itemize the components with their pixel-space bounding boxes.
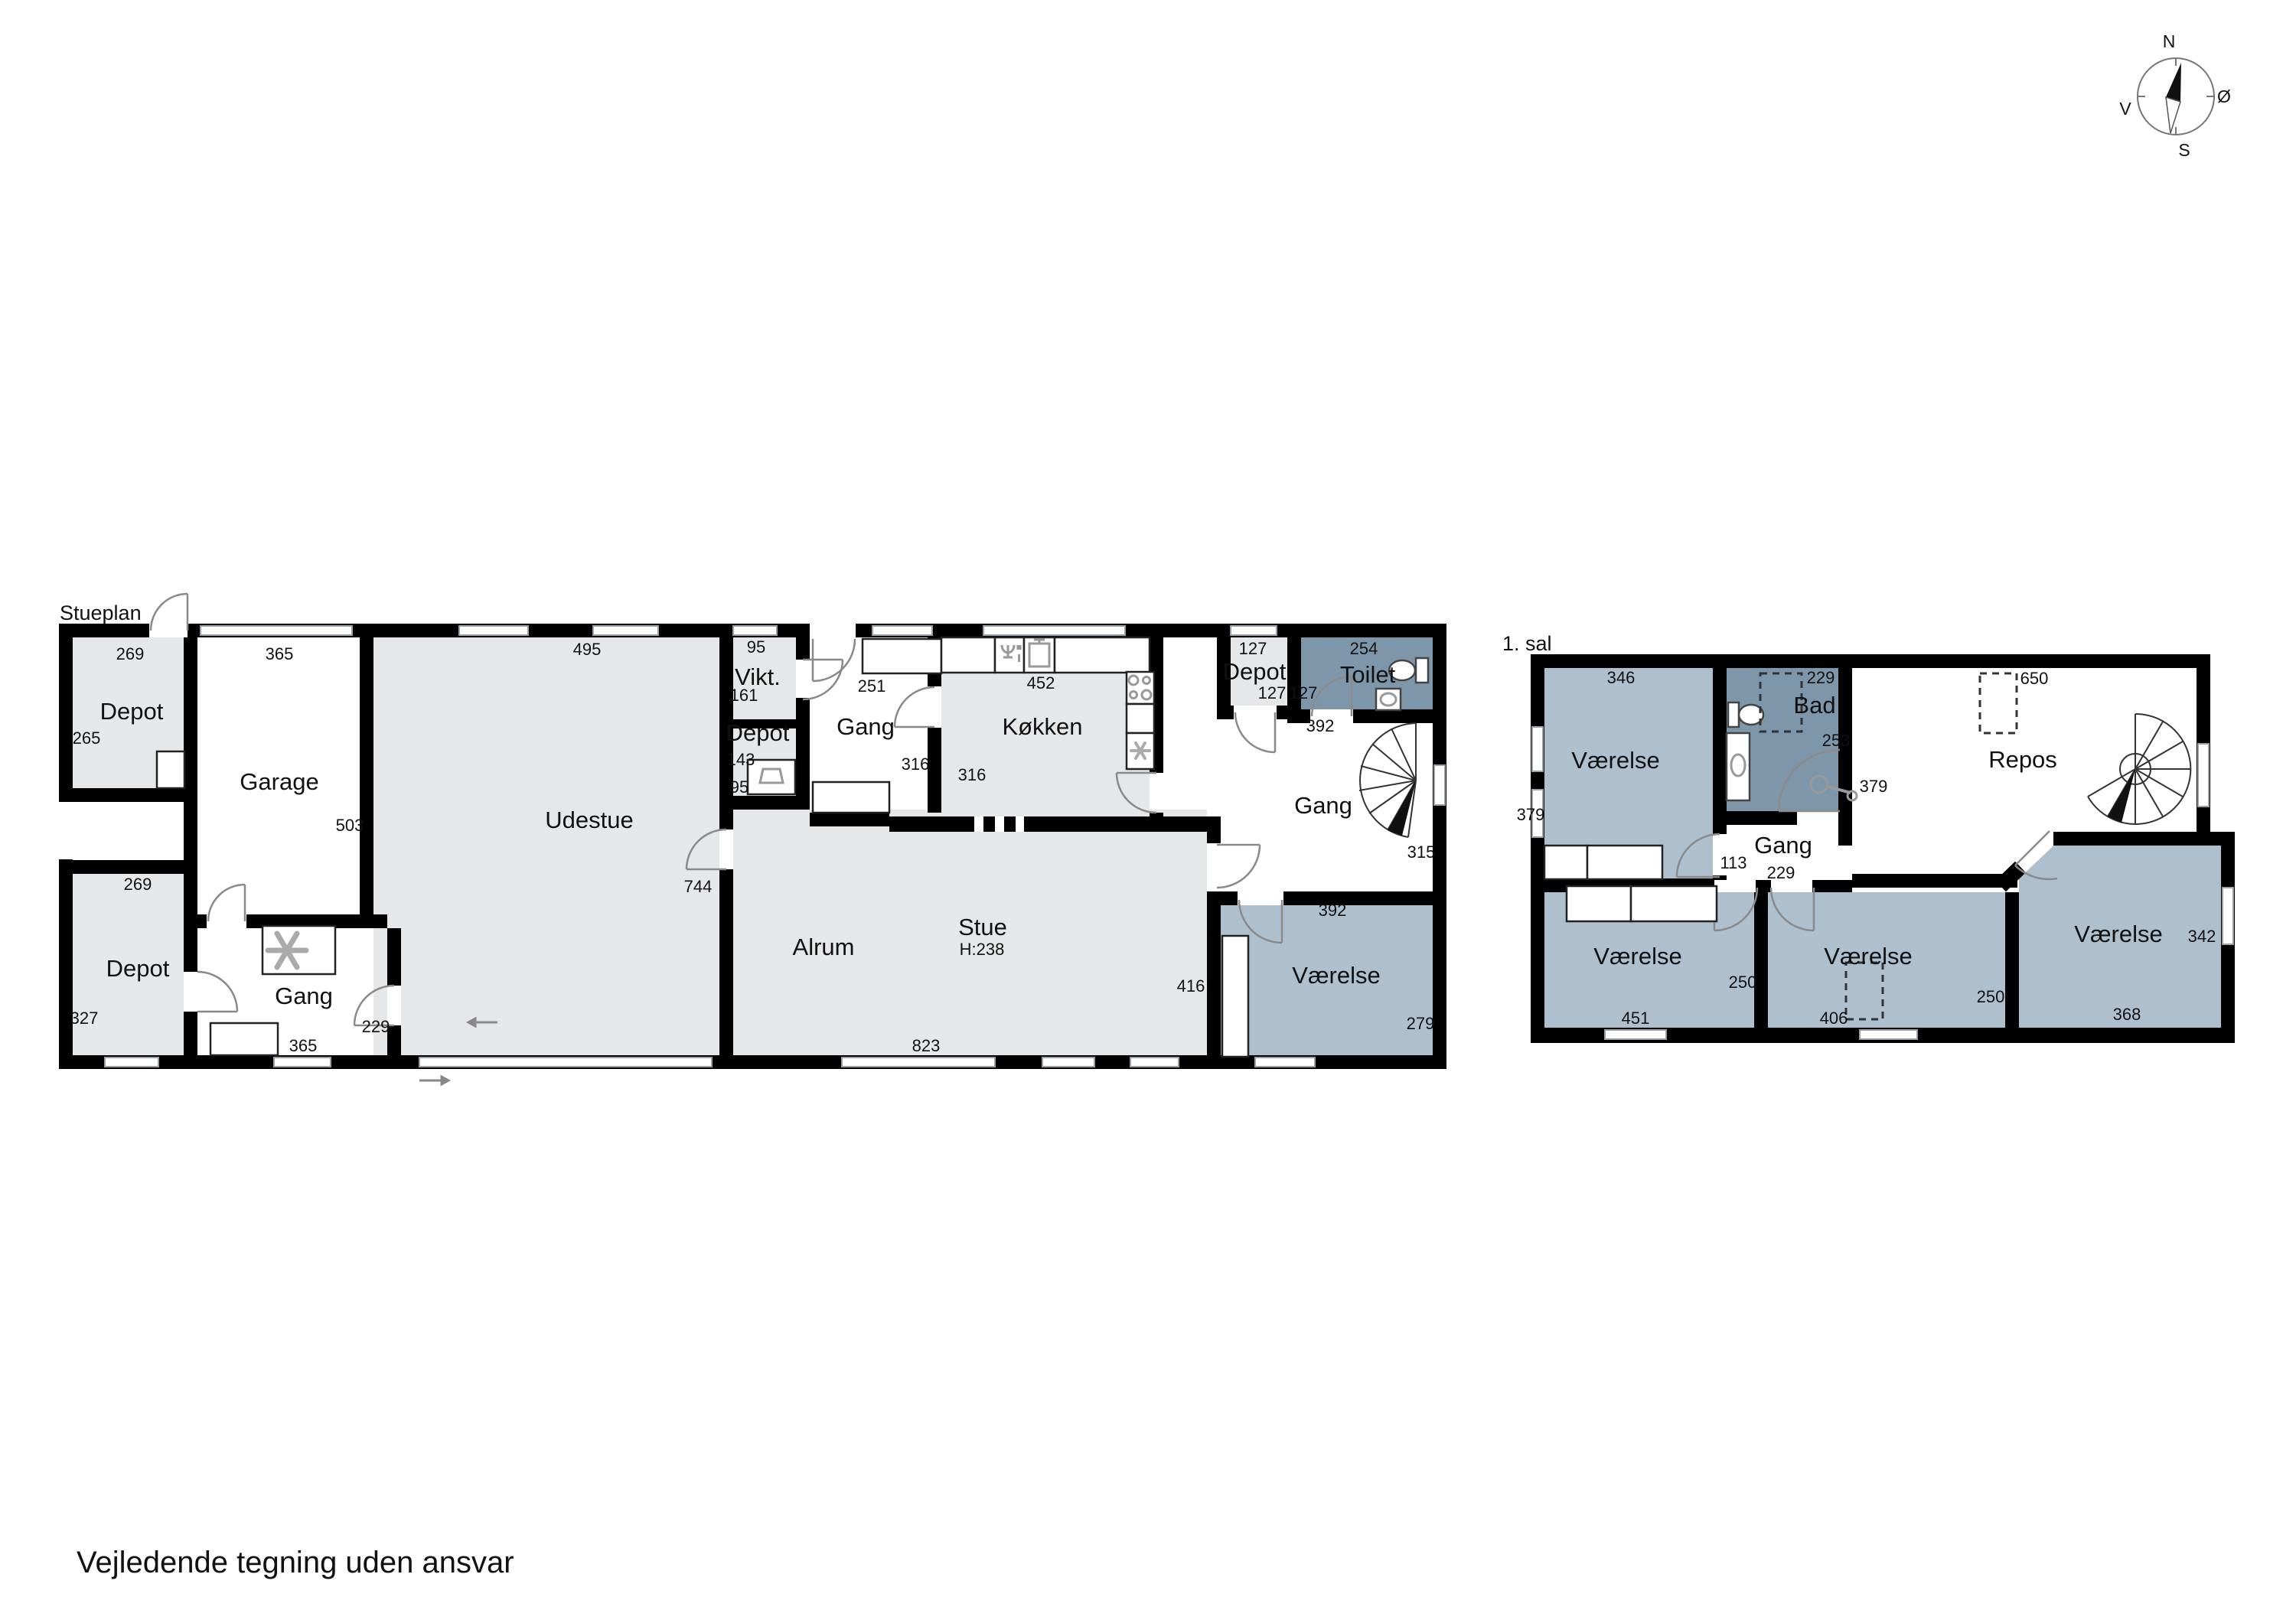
room-dim: 95 xyxy=(747,637,765,657)
room-dim: 127 xyxy=(1290,683,1318,702)
washing-machine-icon xyxy=(263,926,335,974)
compass-rose: N Ø V S xyxy=(2119,31,2231,160)
wardrobe xyxy=(1631,886,1717,921)
room-dim: 251 xyxy=(858,676,886,696)
kitchen-counter xyxy=(1055,637,1150,673)
room-dim: 161 xyxy=(730,686,758,705)
room-dim: 379 xyxy=(1860,777,1888,796)
room-dim: 315 xyxy=(1407,842,1436,862)
room-label: Depot xyxy=(726,719,790,746)
room-label: Gang xyxy=(275,983,333,1009)
room-dim: 346 xyxy=(1607,668,1636,687)
compass-label-south: S xyxy=(2178,140,2190,160)
room-dim: 265 xyxy=(73,728,101,748)
room-dim: 316 xyxy=(902,754,930,774)
compass-label-east: Ø xyxy=(2217,86,2231,106)
room-label: Bad xyxy=(1793,692,1835,719)
room-dim: 416 xyxy=(1177,976,1205,996)
room-dim: 503 xyxy=(336,816,364,835)
room-label: Værelse xyxy=(1292,962,1380,989)
kitchen-sink-icon xyxy=(1024,637,1055,673)
wardrobe xyxy=(1587,846,1662,879)
room-label: Garage xyxy=(240,768,318,795)
room-dim: 229 xyxy=(362,1017,390,1036)
dishwasher-icon xyxy=(995,637,1024,673)
room-dim: 250 xyxy=(1729,973,1757,992)
wardrobe xyxy=(1222,936,1248,1057)
room-dim: 269 xyxy=(124,875,152,894)
room-dim: 379 xyxy=(1517,805,1545,824)
disclaimer-text: Vejledende tegning uden ansvar xyxy=(77,1546,514,1579)
room-label: Gang xyxy=(1754,832,1812,859)
counter xyxy=(813,782,889,813)
room-dim: 406 xyxy=(1820,1009,1848,1028)
room-dim: 342 xyxy=(2188,927,2216,946)
room-label: Værelse xyxy=(1593,943,1681,970)
room-dim: 143 xyxy=(727,750,755,769)
room-dim: 327 xyxy=(70,1009,99,1028)
ground-floor-title: Stueplan xyxy=(60,601,142,624)
compass-label-north: N xyxy=(2163,31,2176,51)
stove-icon xyxy=(1127,672,1154,704)
room-dim: 650 xyxy=(2020,669,2049,688)
kitchen-cabinet xyxy=(1127,704,1154,733)
room-label: Repos xyxy=(1988,746,2057,773)
room-label: Depot xyxy=(100,698,164,725)
wardrobe xyxy=(1567,886,1631,921)
room-dim: 452 xyxy=(1027,673,1055,693)
room-dim: 368 xyxy=(2113,1005,2141,1024)
room-dim: 253 xyxy=(1822,731,1851,750)
room-udestue xyxy=(373,637,719,1055)
room-dim: 279 xyxy=(1407,1014,1435,1033)
first-floor-plan: 1. sal Værelse 346 379 Bad 229 253 Gang … xyxy=(1502,632,2235,1043)
compass-label-west: V xyxy=(2119,99,2131,119)
fridge-icon xyxy=(1127,733,1154,769)
room-dim: 254 xyxy=(1350,639,1378,658)
room-dim: 95 xyxy=(730,777,748,797)
room-label: Værelse xyxy=(2074,921,2162,947)
ground-floor-plan: Stueplan Depot 269 265 Garage 365 503 De… xyxy=(59,594,1446,1084)
room-dim: 365 xyxy=(266,644,294,663)
room-label: Gang xyxy=(837,713,895,740)
kitchen-counter xyxy=(941,637,995,673)
counter xyxy=(863,639,941,673)
room-dim: 127 xyxy=(1258,683,1287,702)
compass-needle-south xyxy=(2166,97,2180,133)
room-label: Alrum xyxy=(793,934,855,960)
room-label: Værelse xyxy=(1571,747,1659,774)
room-label: Depot xyxy=(1223,658,1287,685)
floor-plan-drawing: Stueplan Depot 269 265 Garage 365 503 De… xyxy=(0,0,2296,1623)
bath-sink-icon xyxy=(1727,733,1750,800)
room-dim: 113 xyxy=(1720,853,1746,872)
first-floor-title: 1. sal xyxy=(1502,632,1552,655)
compass-needle-north xyxy=(2166,63,2181,102)
room-dim: 269 xyxy=(116,644,145,663)
room-label: Toilet xyxy=(1340,661,1396,688)
room-dim: 392 xyxy=(1319,901,1347,920)
room-dim: 495 xyxy=(573,640,602,659)
room-label: Depot xyxy=(106,955,170,982)
room-dim: 229 xyxy=(1807,668,1835,687)
room-label: Stue xyxy=(958,914,1007,940)
toilet-icon xyxy=(1728,702,1763,727)
niche xyxy=(157,751,184,788)
floor-plan-page: Stueplan Depot 269 265 Garage 365 503 De… xyxy=(0,0,2296,1623)
room-label: Gang xyxy=(1294,792,1352,819)
room-dim: 127 xyxy=(1239,639,1267,658)
toilet-sink-icon xyxy=(1376,689,1401,710)
room-dim: 250 xyxy=(1977,987,2005,1006)
room-dim: 823 xyxy=(912,1036,941,1055)
room-dim: 365 xyxy=(289,1036,318,1055)
room-dim: 392 xyxy=(1306,716,1335,735)
counter xyxy=(210,1023,278,1055)
room-dim: 229 xyxy=(1767,863,1795,882)
room-label: Udestue xyxy=(545,807,633,833)
room-label: Værelse xyxy=(1824,943,1912,970)
wardrobe xyxy=(1544,846,1587,879)
room-dim: 316 xyxy=(958,765,987,784)
room-dim: 744 xyxy=(684,877,713,896)
room-label: Køkken xyxy=(1002,713,1082,740)
room-height-note: H:238 xyxy=(960,940,1005,959)
room-dim: 451 xyxy=(1622,1009,1650,1028)
